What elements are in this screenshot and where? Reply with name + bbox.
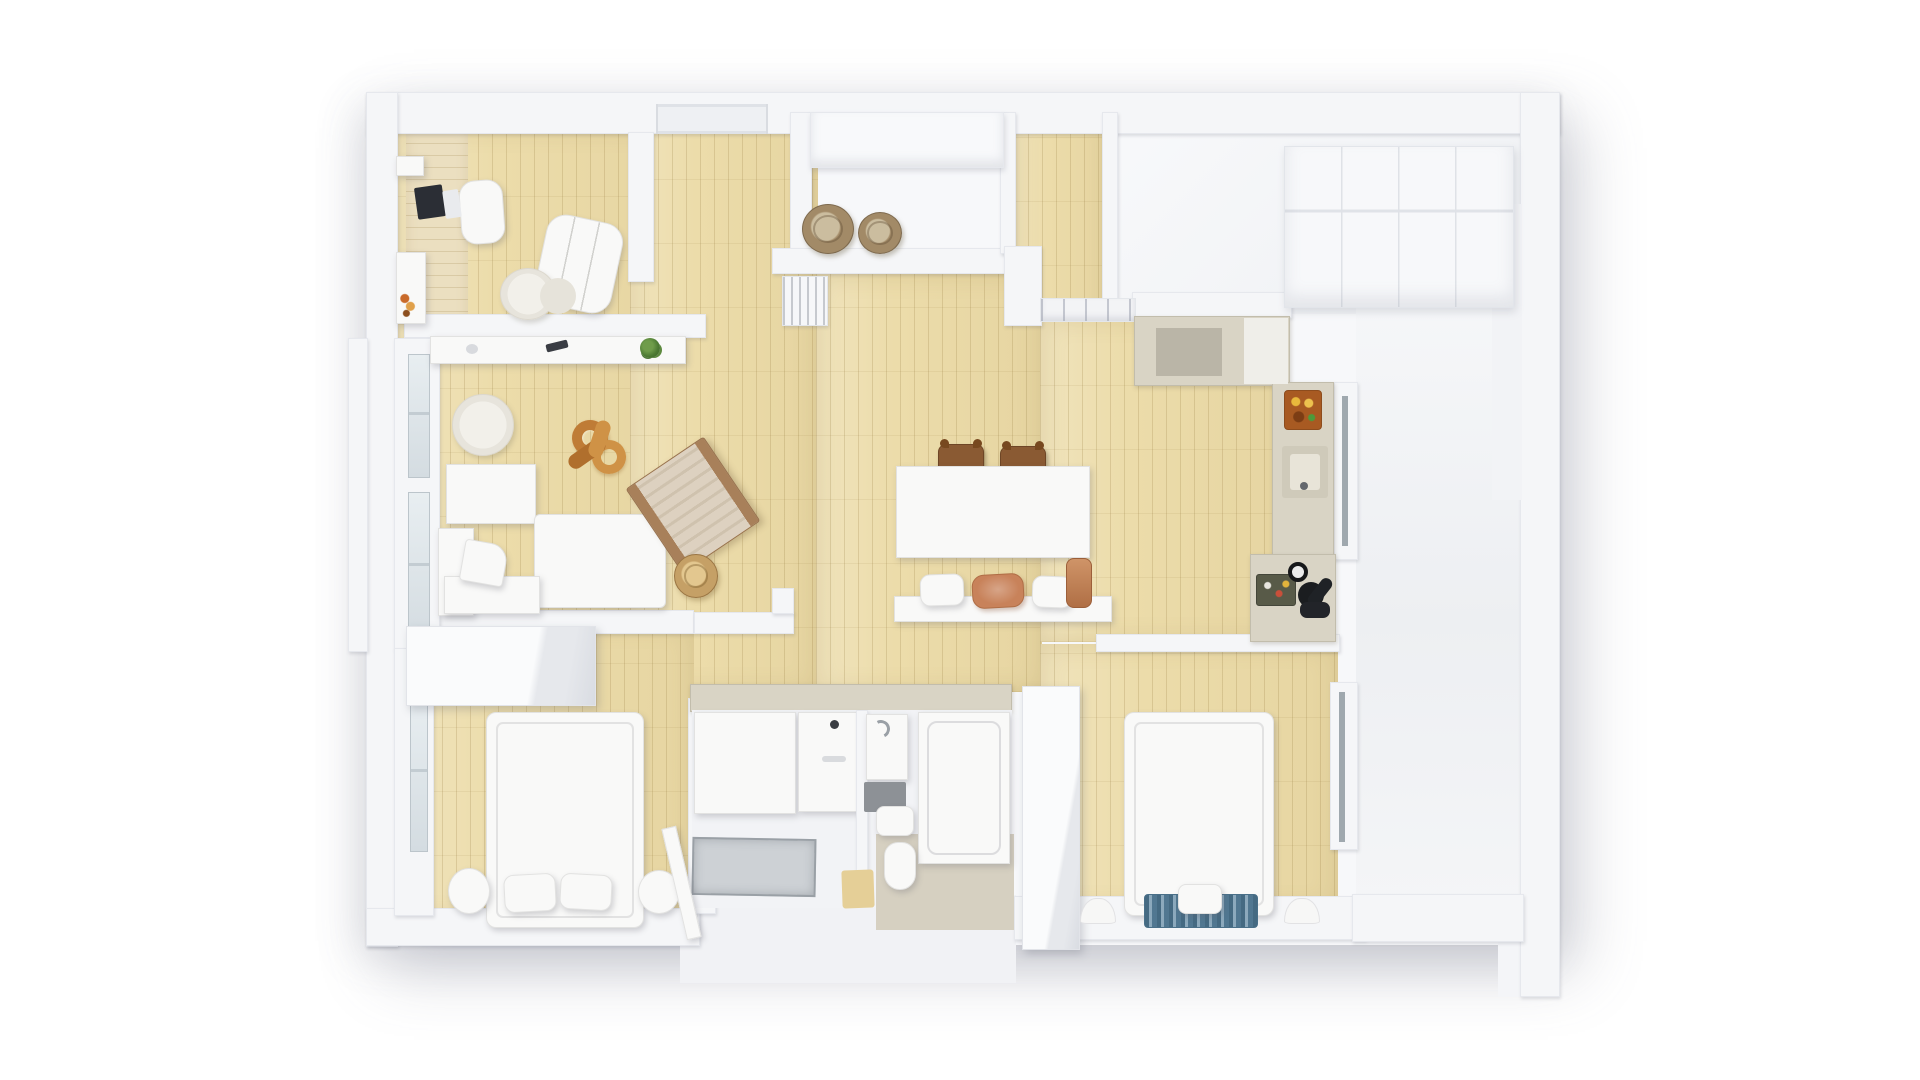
kitchen-upper-white-top <box>1244 318 1288 384</box>
wall-wardrobe-room-left <box>1102 112 1118 302</box>
console-sensor <box>466 344 478 354</box>
wall-right-outer <box>1520 92 1560 997</box>
shower-wood-mat <box>841 869 874 908</box>
shelf-bottles <box>400 292 416 318</box>
entry-door-frame <box>656 104 768 134</box>
office-chair <box>458 179 506 246</box>
bathtub <box>918 712 1010 864</box>
shower-tray <box>692 837 817 897</box>
basket-entry-1 <box>802 204 854 254</box>
wall-bath-step <box>772 588 794 614</box>
shower-stall <box>694 712 796 814</box>
bolster-bed1-left <box>448 868 490 914</box>
kitchen-scale-gauge <box>1288 562 1308 582</box>
entry-closet <box>810 112 1004 168</box>
sofa-back <box>446 464 536 524</box>
wall-office-divider <box>404 314 706 338</box>
stove-cooktop <box>1284 390 1322 430</box>
wall-bottom-side-hall <box>1352 894 1524 942</box>
toilet-tank <box>876 806 914 836</box>
glass-door-bedroom-2 <box>1339 692 1345 842</box>
pouf-office <box>540 278 576 314</box>
pot-black <box>1300 602 1330 618</box>
sofa-chaise <box>534 514 666 608</box>
hall-shelf-band <box>1040 298 1136 322</box>
laptop <box>414 184 446 220</box>
vanity-cabinet <box>798 712 858 812</box>
pillow-bed1-right <box>559 873 613 912</box>
bathroom-top-counter <box>690 684 1012 712</box>
bench-cushion-1 <box>919 573 964 607</box>
wall-shelf-office-1 <box>396 156 424 176</box>
floor-plan <box>0 0 1920 1080</box>
wall-bath-top <box>694 612 794 634</box>
basket-living <box>674 554 718 598</box>
rug-living <box>452 394 514 456</box>
wall-entry-bottom <box>772 248 1018 274</box>
closet-row-wardrobe-room <box>1284 146 1514 308</box>
kitchen-upper-notch <box>1156 328 1222 376</box>
toilet-bowl <box>884 842 916 890</box>
vanity-faucet-dot <box>830 720 839 729</box>
wardrobe-bedroom-2 <box>1022 686 1080 950</box>
terracotta-pot <box>1066 558 1092 608</box>
window-glass-bedroom-1 <box>410 696 428 852</box>
wardrobe-bedroom-1 <box>406 626 596 706</box>
kitchen-faucet-dot <box>1300 482 1308 490</box>
wall-office-right <box>628 132 654 282</box>
window-glass-living-1 <box>408 354 430 478</box>
bench-cushion-terracotta <box>971 573 1025 610</box>
basket-entry-2 <box>858 212 902 254</box>
dining-table <box>896 466 1090 558</box>
potted-plant <box>640 338 660 358</box>
glass-door-kitchen <box>1342 396 1348 546</box>
pillow-bed2 <box>1178 884 1222 914</box>
pillow-bed1-left <box>503 873 557 914</box>
window-sill-left <box>348 338 368 652</box>
radiator-hall <box>782 276 828 326</box>
vanity-handle <box>822 756 846 762</box>
wall-kitchen-top <box>1132 292 1292 318</box>
window-glass-living-2 <box>408 492 430 642</box>
wall-corridor-left-lower <box>1004 246 1042 326</box>
